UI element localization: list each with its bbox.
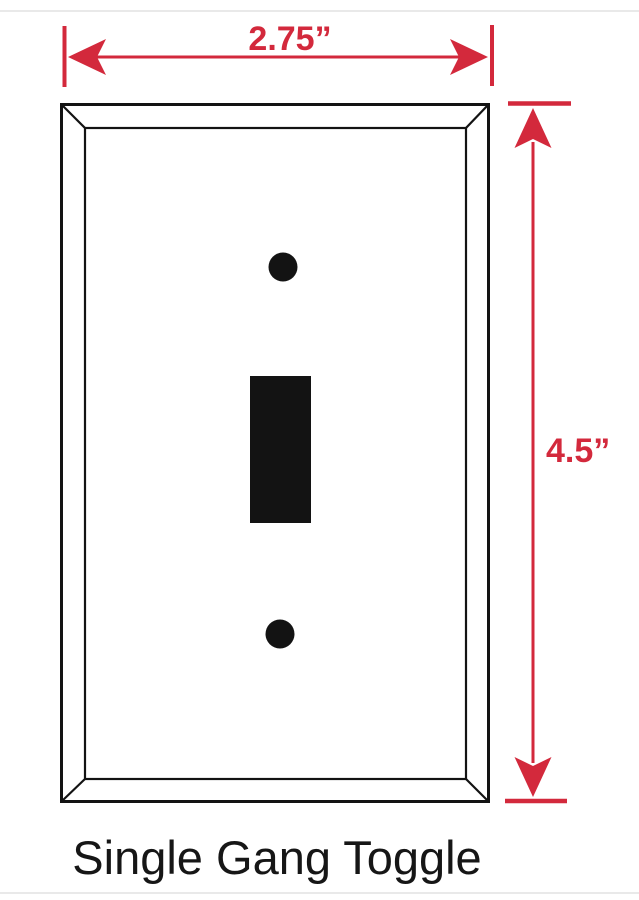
wall-plate-diagram: 2.75” 4.5” Single Gang Toggle bbox=[0, 0, 639, 900]
width-dimension-label: 2.75” bbox=[248, 20, 331, 58]
height-dimension: 4.5” bbox=[505, 104, 610, 802]
screw-hole-top bbox=[269, 253, 298, 282]
width-dimension: 2.75” bbox=[65, 20, 493, 87]
wall-plate bbox=[62, 105, 489, 802]
screw-hole-bottom bbox=[266, 620, 295, 649]
page: { "diagram": { "title": "Single Gang Tog… bbox=[0, 0, 639, 900]
height-dimension-label: 4.5” bbox=[546, 432, 610, 470]
diagram-title: Single Gang Toggle bbox=[72, 831, 481, 884]
toggle-switch-slot bbox=[250, 376, 311, 523]
